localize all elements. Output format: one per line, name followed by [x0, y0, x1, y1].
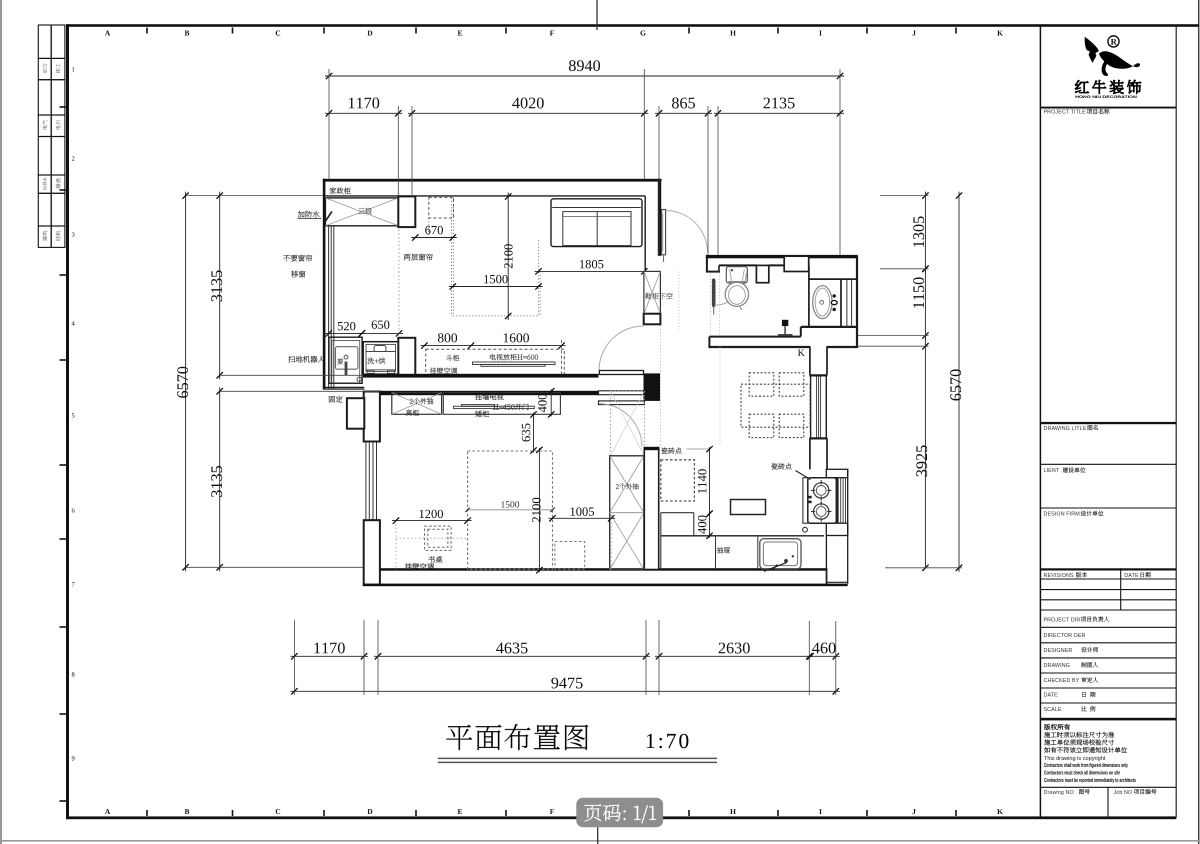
svg-text:DRAWING: DRAWING: [1043, 663, 1069, 669]
svg-text:Job NO: Job NO: [1113, 790, 1132, 796]
svg-text:Contractors must check all dim: Contractors must check all dimensions on…: [1044, 771, 1120, 777]
svg-text:DESIGN FIRM: DESIGN FIRM: [1043, 512, 1080, 518]
svg-text:PROJECT DIR: PROJECT DIR: [1043, 617, 1080, 623]
svg-text:PROJECT TITLE: PROJECT TITLE: [1043, 110, 1086, 116]
svg-text:DRAWING LITLE: DRAWING LITLE: [1043, 426, 1086, 432]
svg-text:HONG NIU DECORATION: HONG NIU DECORATION: [1075, 94, 1137, 99]
svg-text:DATE: DATE: [1043, 693, 1058, 699]
svg-text:This drawing is copyright: This drawing is copyright: [1044, 756, 1106, 762]
svg-text:DIRECTOR DER: DIRECTOR DER: [1043, 633, 1085, 639]
svg-text:SCALE: SCALE: [1043, 707, 1061, 713]
svg-text:CHECKED BY: CHECKED BY: [1043, 678, 1079, 684]
svg-text:Contractors must be reported i: Contractors must be reported immediately…: [1044, 778, 1136, 784]
svg-text:Drawing NO: Drawing NO: [1043, 790, 1073, 796]
svg-text:DATE: DATE: [1124, 573, 1139, 579]
svg-text:Contractors shall work from fi: Contractors shall work from figured dime…: [1044, 763, 1128, 769]
svg-text:LIENT: LIENT: [1043, 468, 1059, 474]
svg-text:DESIGNER: DESIGNER: [1043, 648, 1072, 654]
svg-text:REVISIONS: REVISIONS: [1043, 573, 1073, 579]
